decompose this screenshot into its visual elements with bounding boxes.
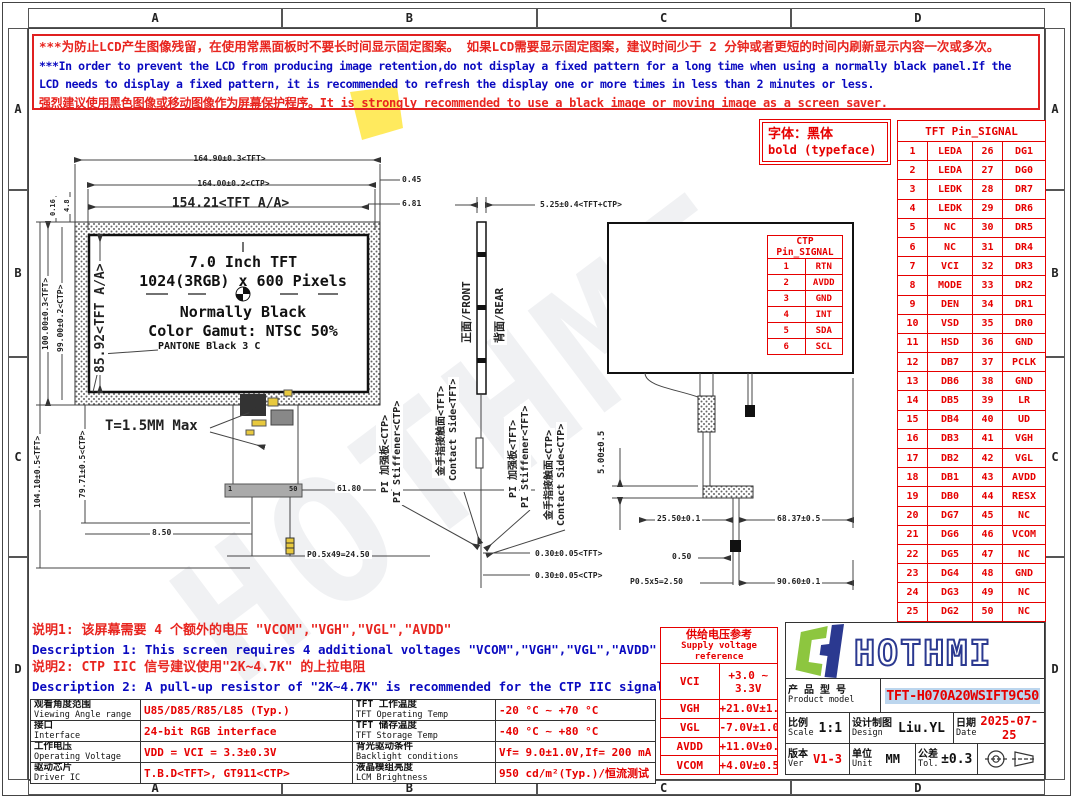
tft-pin-row: 8MODE33DR2 (898, 276, 1046, 295)
dim-label: 85.92<TFT A/A> (93, 261, 108, 375)
tft-pin-row: 19DB044RESX (898, 487, 1046, 506)
scale-value: 1:1 (814, 721, 847, 736)
panel-gamut-label: Color Gamut: NTSC 50% (128, 322, 358, 340)
design-value: Liu.YL (892, 721, 951, 736)
pin-number-label: 1 (226, 485, 234, 493)
tft-pin-row: 14DB539LR (898, 391, 1046, 410)
pantone-label: PANTONE Black 3 C (158, 341, 260, 352)
hothmi-logo: HOTHMI (786, 624, 1042, 678)
thickness-label: T=1.5MM Max (103, 418, 200, 434)
tft-pin-table-title: TFT Pin_SIGNAL (898, 121, 1046, 142)
logo-row: HOTHMI (786, 623, 1044, 679)
ver-label-en: Ver (788, 760, 808, 770)
note1-zh: 说明1: 该屏幕需要 4 个额外的电压 "VCOM","VGH","VGL","… (32, 622, 672, 641)
ctp-pin-row: 5SDA (768, 323, 843, 339)
tft-pin-row: 10VSD35DR0 (898, 314, 1046, 333)
supply-row: AVDD+11.0V±0.3V (661, 737, 778, 756)
supply-table-title: 供给电压参考 Supply voltage reference (661, 628, 778, 664)
tft-pin-row: 9DEN34DR1 (898, 295, 1046, 314)
spec-row: 驱动芯片Driver IC T.B.D<TFT>, GT911<CTP> 液晶模… (31, 763, 656, 784)
tft-pin-row: 1LEDA26DG1 (898, 142, 1046, 161)
note1-en: Description 1: This screen requires 4 ad… (32, 641, 672, 660)
tft-pin-row: 7VCI32DR3 (898, 257, 1046, 276)
typeface-note-en: bold (typeface) (768, 143, 887, 158)
tol-value: ±0.3 (938, 752, 975, 767)
ctp-pin-row: 1RTN (768, 259, 843, 275)
stiffener-ctp-label-zh: PI 加强板<CTP> (376, 413, 391, 495)
notes-block: 说明1: 该屏幕需要 4 个额外的电压 "VCOM","VGH","VGL","… (32, 622, 672, 696)
ctp-pin-row: 4INT (768, 307, 843, 323)
tft-pin-row: 11HSD36GND (898, 333, 1046, 352)
spec-row: 工作电压Operating Voltage VDD = VCI = 3.3±0.… (31, 742, 656, 763)
dim-label: 164.00±0.2<CTP> (88, 179, 379, 188)
warning-line-en: ***In order to prevent the LCD from prod… (39, 57, 1033, 76)
stiffener-ctp-label-en: PI Stiffener<CTP> (392, 399, 403, 505)
warning-line-zh: ***为防止LCD产生图像残留，在使用常黑面板时不要长时间显示固定图案。 如果L… (39, 38, 1033, 57)
contact-tft-label-en: Contact Side<TFT> (448, 377, 459, 483)
ctp-pin-row: 6SCL (768, 339, 843, 355)
tft-pin-row: 24DG349NC (898, 583, 1046, 602)
dim-label: 61.80 (335, 484, 363, 493)
date-value: 2025-07-25 (976, 714, 1042, 742)
dim-label: 5.25±0.4<TFT+CTP> (538, 200, 624, 209)
stiffener-tft-label-en: PI Stiffener<TFT> (520, 404, 531, 510)
panel-resolution-label: 1024(3RGB) x 600 Pixels (128, 272, 358, 290)
warning-line-zh: 强烈建议使用黑色图像或移动图像作为屏幕保护程序。It is strongly r… (39, 94, 1033, 113)
supply-voltage-table: 供给电压参考 Supply voltage reference VCI+3.0 … (660, 627, 778, 775)
stiffener-tft-label-zh: PI 加强板<TFT> (504, 418, 519, 500)
dim-label: 68.37±0.5 (775, 514, 822, 523)
supply-row: VCI+3.0 ~ 3.3V (661, 664, 778, 700)
supply-row: VCOM+4.0V±0.5V (661, 756, 778, 775)
dim-label: 0.16 (49, 197, 57, 218)
dim-label: P0.5x5=2.50 (628, 577, 685, 586)
supply-title-zh: 供给电压参考 (661, 628, 777, 641)
tft-pin-row: 5NC30DR5 (898, 218, 1046, 237)
tft-pin-table: TFT Pin_SIGNAL 1LEDA26DG12LEDA27DG03LEDK… (897, 120, 1046, 622)
contact-ctp-label-zh: 金手指接触面<CTP> (540, 428, 555, 522)
engineering-drawing-sheet: A B C D A B C D A B C D A B C D HOTHMI (0, 0, 1073, 798)
panel-size-label: 7.0 Inch TFT (128, 253, 358, 271)
unit-value: MM (872, 752, 913, 766)
ctp-pin-table-title: CTP Pin_SIGNAL (768, 236, 843, 259)
dim-label: 99.00±0.2<CTP> (56, 283, 65, 354)
supply-title-en: Supply voltage reference (661, 641, 777, 663)
dim-label: 6.81 (400, 199, 423, 208)
product-model-row: 产 品 型 号 Product model TFT-H070A20WSIFT9C… (786, 679, 1044, 713)
dim-label: 164.90±0.3<TFT> (75, 154, 384, 163)
design-label-en: Design (852, 729, 892, 739)
tft-pin-row: 20DG745NC (898, 506, 1046, 525)
tft-pin-row: 15DB440UD (898, 410, 1046, 429)
ctp-pin-table: CTP Pin_SIGNAL 1RTN2AVDD3GND4INT5SDA6SCL (767, 235, 843, 355)
tft-pin-row: 13DB638GND (898, 372, 1046, 391)
front-side-label: 正面/FRONT (458, 279, 474, 345)
retention-warning-box: ***为防止LCD产生图像残留，在使用常黑面板时不要长时间显示固定图案。 如果L… (32, 34, 1040, 110)
hothmi-wordmark: HOTHMI (854, 634, 992, 674)
dim-label: 5.00±0.5 (597, 429, 607, 476)
date-label-en: Date (956, 729, 976, 739)
dim-label: 0.45 (400, 175, 423, 184)
tft-pin-row: 25DG250NC (898, 602, 1046, 622)
contact-ctp-label-en: Contact Side<CTP> (556, 422, 567, 528)
note2-zh: 说明2: CTP IIC 信号建议使用"2K~4.7K" 的上拉电阻 (32, 659, 672, 678)
ver-value: V1-3 (808, 752, 847, 766)
rear-side-label: 背面/REAR (491, 286, 507, 345)
scale-label-en: Scale (788, 729, 814, 739)
scale-design-date-row: 比例 Scale 1:1 设计制图 Design Liu.YL 日期 Date … (786, 713, 1044, 744)
ver-unit-tol-row: 版本 Ver V1-3 单位 Unit MM 公差 Tol. ±0.3 (786, 744, 1044, 774)
dim-label: 0.30±0.05<CTP> (533, 571, 604, 580)
warning-line-en: LCD needs to display a fixed pattern, it… (39, 75, 1033, 94)
unit-label-en: Unit (852, 760, 872, 770)
tft-pin-row: 6NC31DR4 (898, 237, 1046, 256)
spec-table: 观看角度范围Viewing Angle range U85/D85/R85/L8… (30, 699, 656, 784)
note2-en: Description 2: A pull-up resistor of "2K… (32, 678, 672, 697)
tft-pin-row: 21DG646VCOM (898, 525, 1046, 544)
title-block: HOTHMI 产 品 型 号 Product model TFT-H070A20… (785, 622, 1045, 775)
tft-pin-row: 16DB341VGH (898, 429, 1046, 448)
tft-pin-row: 2LEDA27DG0 (898, 161, 1046, 180)
pin-number-label: 50 (287, 485, 299, 493)
supply-row: VGL-7.0V±1.0V (661, 718, 778, 737)
dim-label: 90.60±0.1 (775, 577, 822, 586)
ctp-pin-row: 2AVDD (768, 275, 843, 291)
panel-mode-label: Normally Black (128, 303, 358, 321)
dim-label: 100.00±0.3<TFT> (41, 276, 50, 352)
typeface-note-zh: 字体：黑体 (768, 127, 887, 143)
typeface-note-box: 字体：黑体 bold (typeface) (762, 122, 888, 162)
dim-label: 0.50 (670, 552, 693, 561)
tft-pin-row: 22DG547NC (898, 544, 1046, 563)
dim-label: 154.21<TFT A/A> (89, 196, 372, 211)
supply-row: VGH+21.0V±1.0V (661, 700, 778, 719)
tol-label-en: Tol. (918, 760, 938, 770)
tft-pin-row: 17DB242VGL (898, 449, 1046, 468)
contact-tft-label-zh: 金手指接触面<TFT> (432, 384, 447, 478)
product-model-value: TFT-H070A20WSIFT9C50 (885, 688, 1040, 704)
tft-pin-row: 12DB737PCLK (898, 353, 1046, 372)
projection-symbol-icon (985, 747, 1037, 771)
tft-pin-row: 4LEDK29DR6 (898, 199, 1046, 218)
dim-label: P0.5x49=24.50 (305, 550, 372, 559)
tft-pin-row: 18DB143AVDD (898, 468, 1046, 487)
dim-label: 4.8 (63, 197, 71, 214)
dim-label: 0.30±0.05<TFT> (533, 549, 604, 558)
spec-row: 观看角度范围Viewing Angle range U85/D85/R85/L8… (31, 700, 656, 721)
dim-label: 79.71±0.5<CTP> (78, 429, 87, 500)
dim-label: 8.50 (150, 528, 173, 537)
dim-label: 104.10±0.5<TFT> (33, 434, 42, 510)
ctp-pin-row: 3GND (768, 291, 843, 307)
tft-pin-row: 23DG448GND (898, 564, 1046, 583)
product-label-en: Product model (788, 696, 855, 706)
tft-pin-row: 3LEDK28DR7 (898, 180, 1046, 199)
dim-label: 25.50±0.1 (655, 514, 702, 523)
spec-row: 接口Interface 24-bit RGB interface TFT 储存温… (31, 721, 656, 742)
